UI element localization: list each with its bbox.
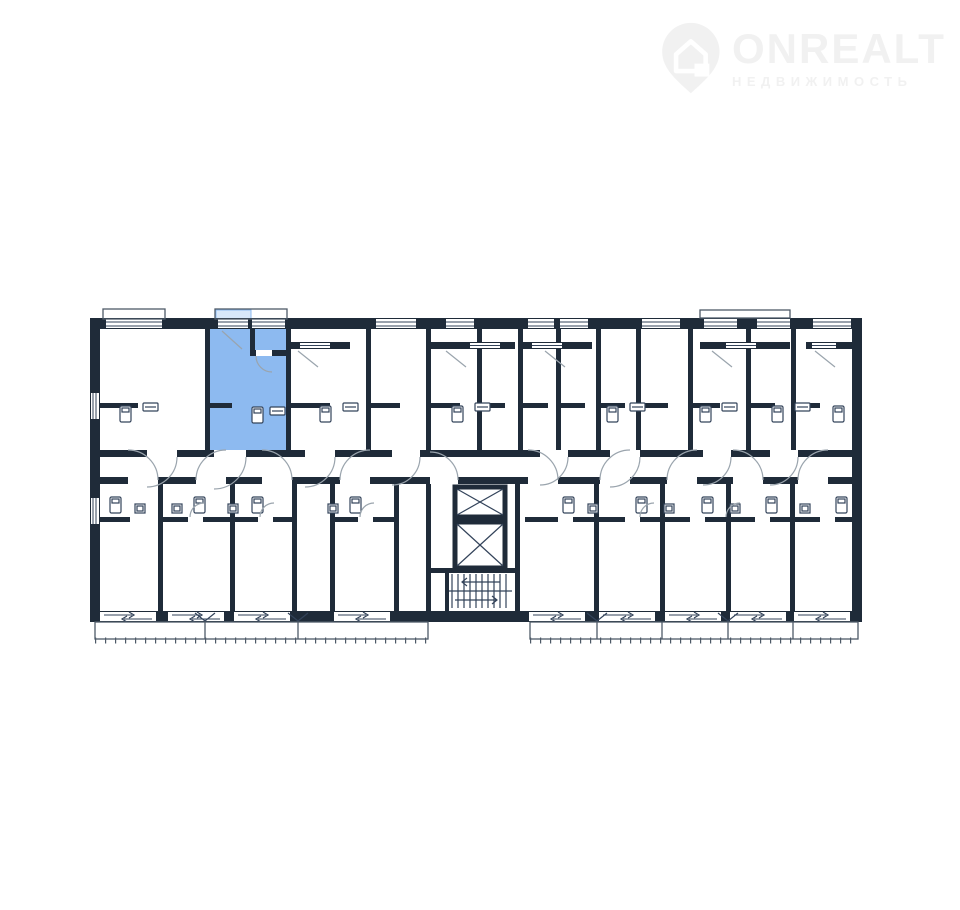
elevator-shafts: [455, 487, 505, 568]
floor-plan: [0, 0, 960, 910]
staircase: [449, 574, 512, 608]
highlighted-apartment[interactable]: [207, 310, 291, 453]
screenshot-root: ONREALT НЕДВИЖИМОСТЬ: [0, 0, 960, 910]
